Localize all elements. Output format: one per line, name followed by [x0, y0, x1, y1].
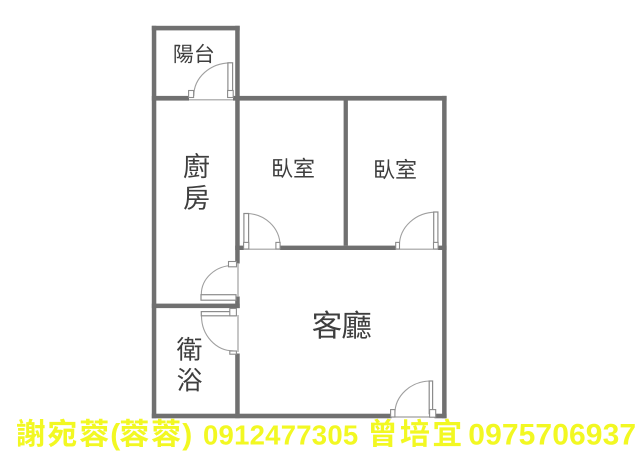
svg-text:0975706937: 0975706937: [468, 419, 636, 452]
svg-text:(: (: [110, 418, 120, 451]
svg-text:0912477305: 0912477305: [203, 420, 358, 451]
svg-text:): ): [182, 418, 192, 451]
